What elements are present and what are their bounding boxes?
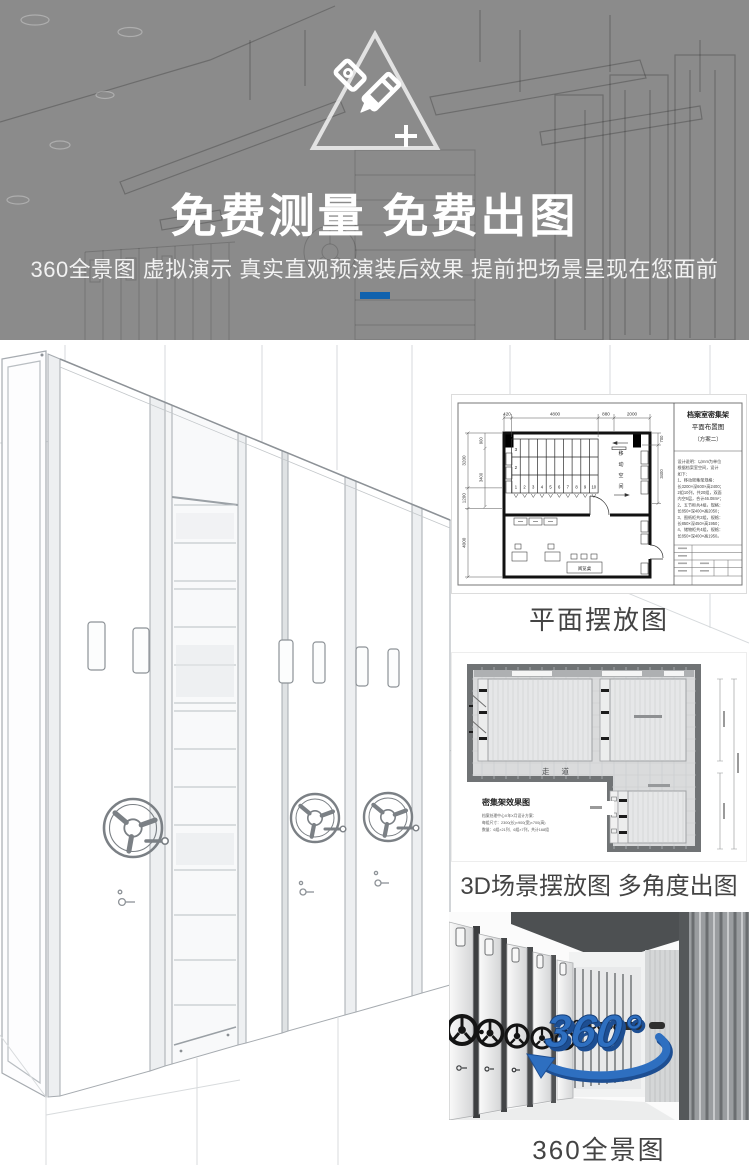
svg-text:1: 1: [515, 485, 518, 490]
svg-text:长850×深400×高1950。: 长850×深400×高1950。: [678, 532, 722, 538]
svg-text:880: 880: [602, 412, 610, 417]
panorama-image: 360° 360°: [449, 912, 749, 1120]
scene-legend: 密集架效果图 档案处理中心X年X月设计方案： 每组尺寸：2300(长)×900(…: [481, 797, 549, 832]
svg-text:间: 间: [618, 483, 623, 490]
scene-dimensions: [717, 679, 739, 849]
floor-plan-caption: 平面摆放图: [449, 600, 749, 637]
svg-text:4000: 4000: [462, 537, 467, 548]
plan-walls: [504, 433, 663, 577]
banner-subtitle: 360全景图 虚拟演示 真实直观预演装后效果 提前把场景呈现在您面前: [0, 252, 749, 284]
svg-text:4: 4: [541, 485, 544, 490]
svg-text:空: 空: [618, 472, 623, 479]
svg-text:长850×深400×高2050；: 长850×深400×高2050；: [678, 508, 722, 514]
svg-text:3: 3: [515, 447, 518, 452]
svg-text:2组10列，共20组，双面: 2组10列，共20组，双面: [678, 489, 722, 495]
svg-text:数量：6组×21列、6组×7列，共计168组: 数量：6组×21列、6组×7列，共计168组: [482, 827, 549, 832]
plan-moving-space: 移 动 空 间: [612, 442, 629, 497]
triangle-outline-icon: [313, 34, 437, 148]
plan-title-block: 档案室密集架 平面布置图 （方案二） 设计说明：以mm为单位 根据档案室空间，设…: [674, 403, 742, 585]
open-door-panel: [2, 351, 46, 1097]
pano-360-logo-text: 360°: [543, 1005, 644, 1057]
svg-text:420: 420: [503, 412, 511, 417]
banner-title: 免费测量 免费出图: [0, 180, 749, 246]
plan-signature-table: [674, 545, 742, 585]
page: 免费测量 免费出图 360全景图 虚拟演示 真实直观预演装后效果 提前把场景呈现…: [0, 0, 749, 1165]
scene-legend-title: 密集架效果图: [481, 797, 530, 807]
svg-text:6: 6: [558, 485, 561, 490]
svg-text:如下：: 如下：: [678, 470, 690, 476]
svg-text:900: 900: [479, 437, 484, 445]
svg-text:动: 动: [618, 461, 623, 468]
svg-text:700: 700: [659, 435, 664, 443]
plus-icon: [395, 125, 417, 147]
svg-text:9: 9: [584, 485, 587, 490]
svg-text:2: 2: [523, 485, 526, 490]
svg-text:3: 3: [532, 485, 535, 490]
plan-furniture: [506, 451, 648, 574]
scene-block-c: [610, 784, 686, 843]
svg-text:4、储物柜共4组，规格：: 4、储物柜共4组，规格：: [678, 526, 724, 532]
svg-text:2: 2: [515, 465, 518, 470]
scene-aisle-label: 走 道: [542, 766, 574, 776]
svg-text:7: 7: [567, 485, 570, 490]
svg-text:每组尺寸：2300(长)×900(宽)×700(高): 每组尺寸：2300(长)×900(宽)×700(高): [482, 820, 546, 825]
accent-underline: [360, 292, 390, 299]
svg-text:3、图纸柜共2组，规格：: 3、图纸柜共2组，规格：: [678, 514, 724, 520]
panorama-caption: 360全景图: [449, 1130, 749, 1165]
scene-block-a: [478, 679, 592, 761]
scene-3d-image: 走 道 密集架效果图 档案处理中心X年X月设计方案： 每组尺寸：2300(长)×…: [451, 652, 747, 862]
svg-text:根据档案室空间，设计: 根据档案室空间，设计: [678, 464, 719, 470]
scene-3d-caption: 3D场景摆放图 多角度出图: [449, 866, 749, 901]
hero-banner: 免费测量 免费出图 360全景图 虚拟演示 真实直观预演装后效果 提前把场景呈现…: [0, 0, 749, 340]
svg-text:长850×深450×高1950；: 长850×深450×高1950；: [678, 520, 722, 526]
svg-text:3200: 3200: [462, 455, 467, 466]
svg-text:2、五节柜共4组，规格：: 2、五节柜共4组，规格：: [678, 501, 724, 507]
svg-text:3400: 3400: [479, 472, 484, 482]
svg-text:档案处理中心X年X月设计方案：: 档案处理中心X年X月设计方案：: [482, 813, 536, 818]
svg-text:1、移动密集架规格：: 1、移动密集架规格：: [678, 477, 717, 483]
cabinet-panels: [48, 354, 450, 1097]
svg-text:8: 8: [575, 485, 578, 490]
svg-text:2000: 2000: [627, 412, 638, 417]
plan-title-line2: 平面布置图: [692, 422, 725, 431]
measure-badge: [305, 26, 445, 161]
plan-title-line3: （方案二）: [694, 435, 722, 443]
svg-text:3400: 3400: [659, 469, 664, 479]
svg-text:长3200×深600×高2400；: 长3200×深600×高2400；: [678, 483, 724, 489]
plan-reading-table-label: 阅览桌: [578, 565, 592, 572]
plan-title-line1: 档案室密集架: [686, 410, 729, 419]
svg-text:设计说明：以mm为单位: 设计说明：以mm为单位: [678, 458, 722, 464]
floor-plan-image: 档案室密集架 平面布置图 （方案二） 设计说明：以mm为单位 根据档案室空间，设…: [451, 394, 747, 594]
svg-text:10: 10: [591, 485, 596, 490]
plan-notes: 设计说明：以mm为单位 根据档案室空间，设计 如下： 1、移动密集架规格： 长3…: [678, 458, 724, 538]
scene-block-b: [600, 679, 686, 761]
plan-stack-numbers: 1 2 3 4 5 6 7 8 9 10 3 2: [515, 447, 597, 490]
svg-text:内空6层，合计46.08m²；: 内空6层，合计46.08m²；: [678, 495, 724, 501]
svg-text:5: 5: [549, 485, 552, 490]
svg-text:移: 移: [618, 450, 623, 457]
svg-text:1200: 1200: [462, 493, 467, 504]
svg-text:4800: 4800: [550, 412, 561, 417]
